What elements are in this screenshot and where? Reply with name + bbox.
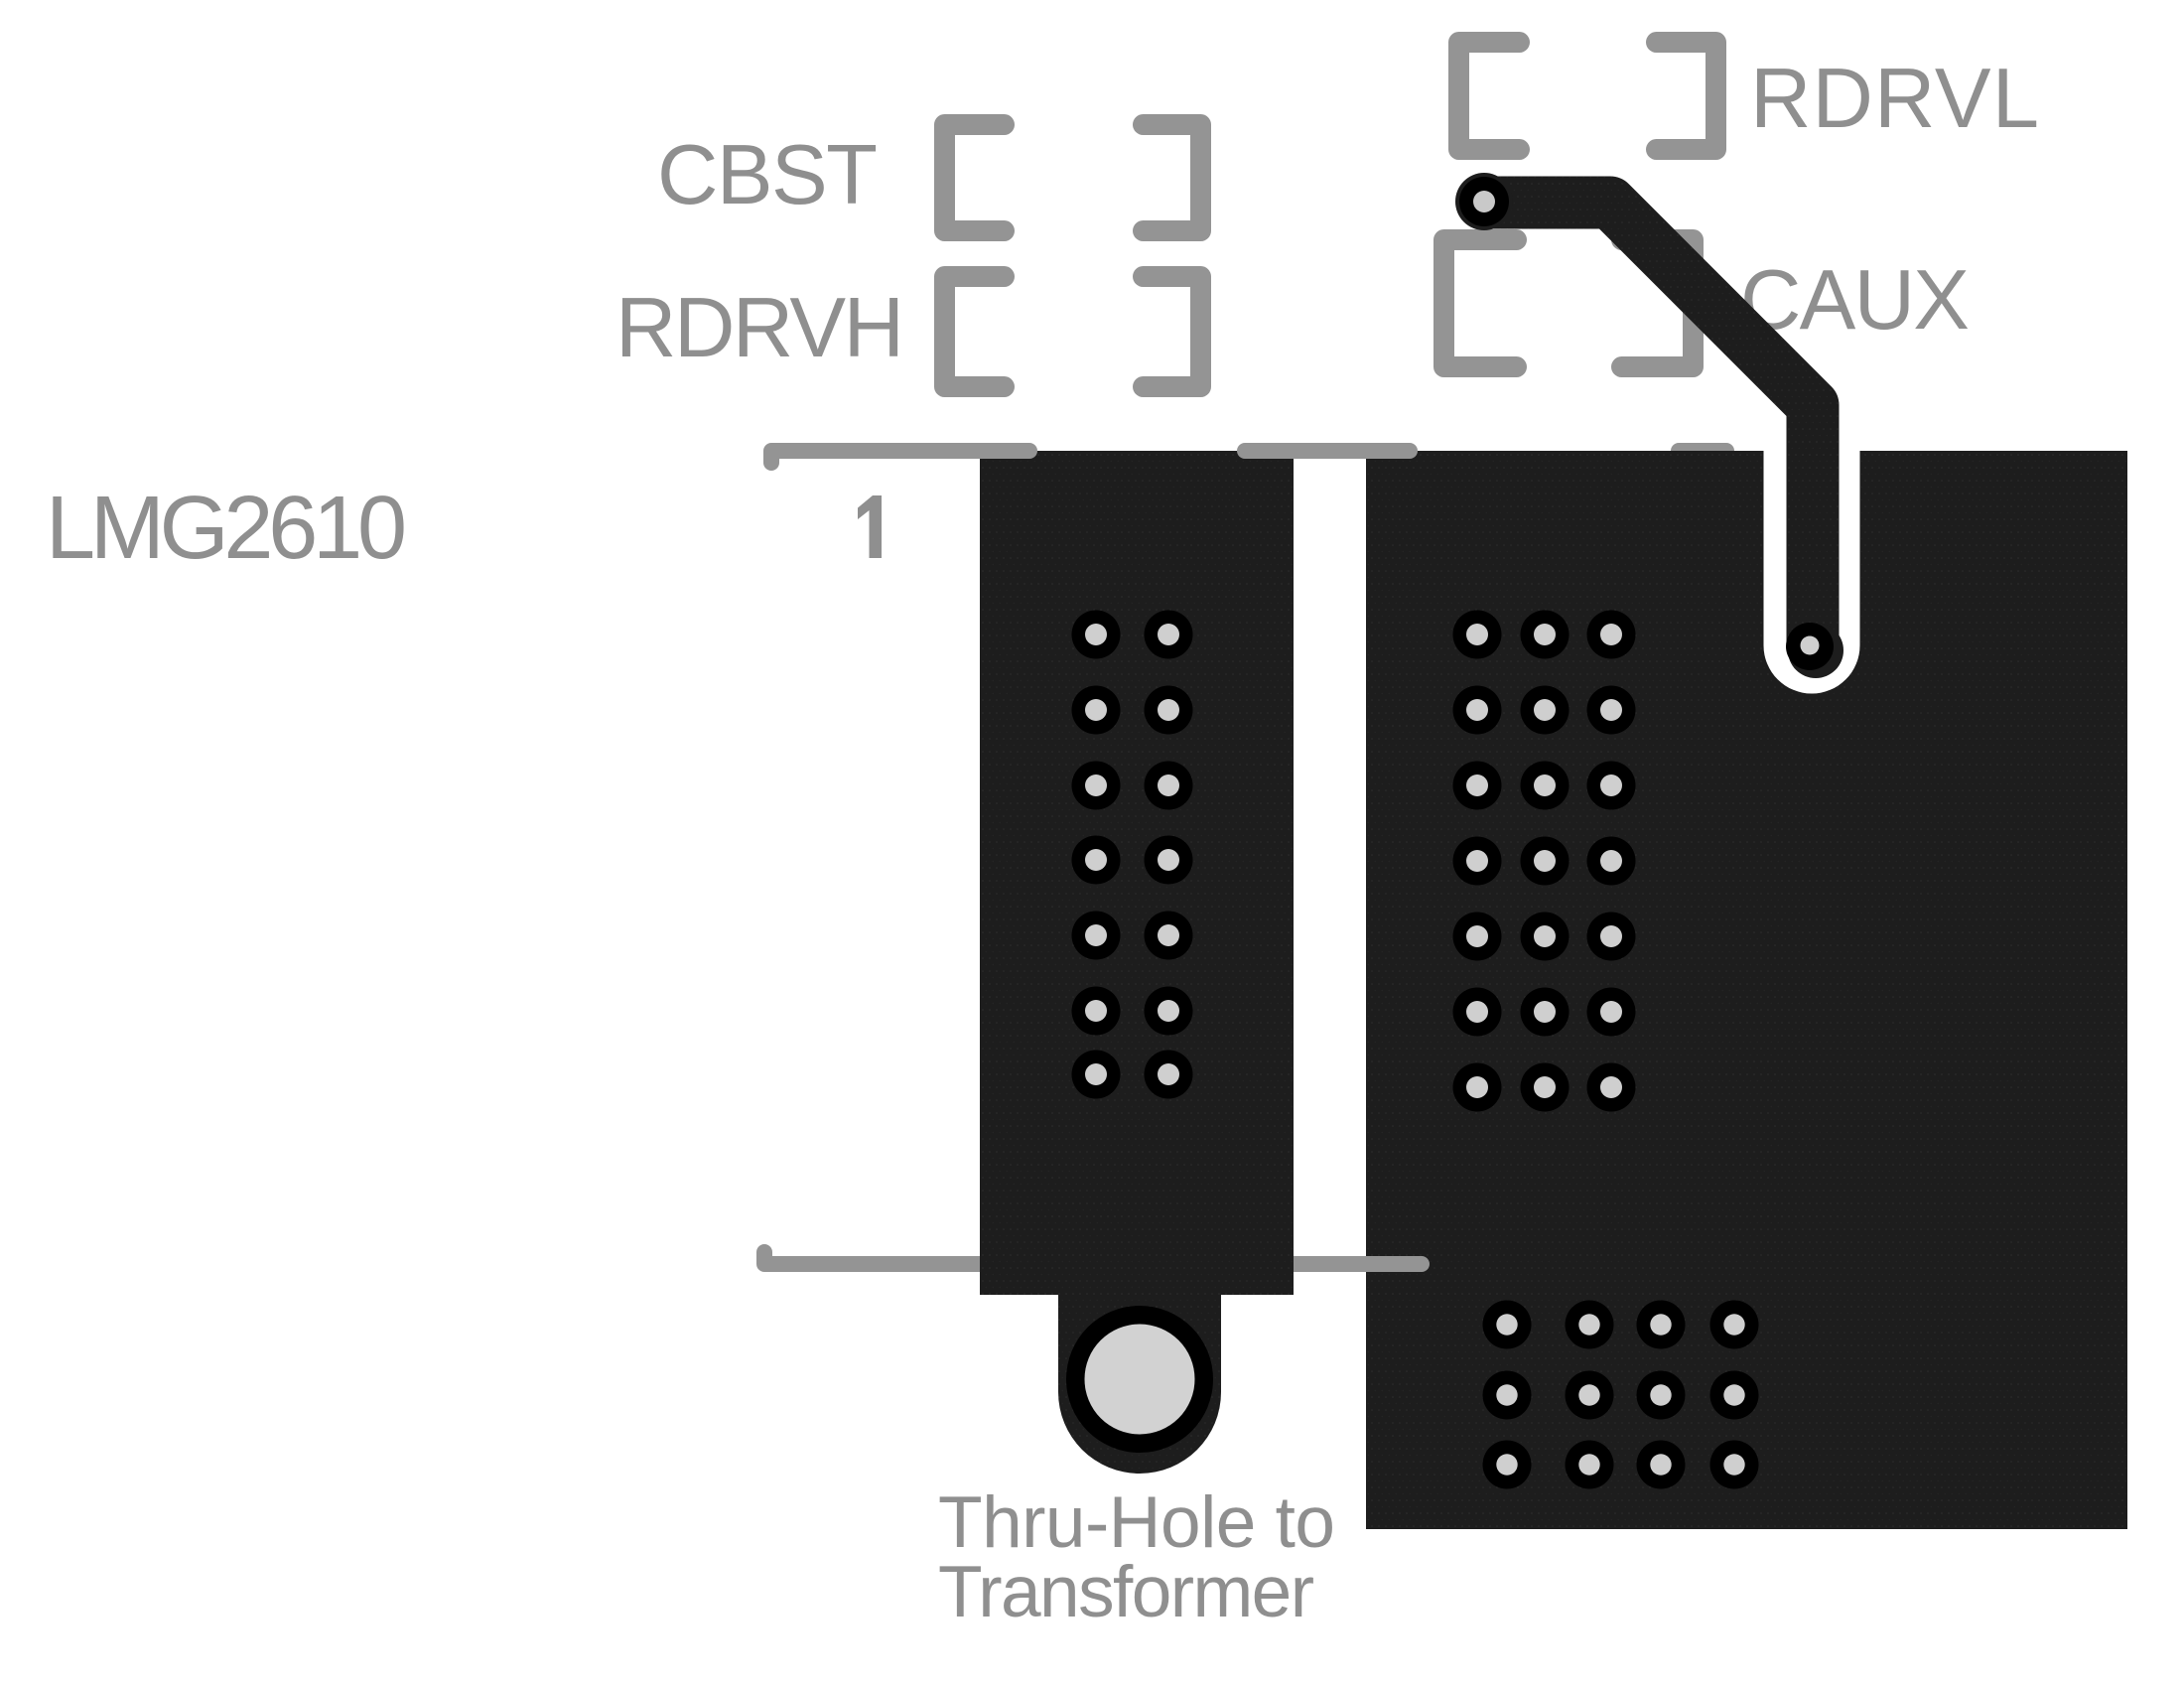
svg-text:Transformer: Transformer <box>938 1552 1314 1632</box>
svg-text:RDRVH: RDRVH <box>615 281 904 375</box>
svg-text:CBST: CBST <box>657 128 878 222</box>
svg-text:Thru-Hole to: Thru-Hole to <box>938 1482 1335 1563</box>
svg-text:RDRVL: RDRVL <box>1750 52 2039 146</box>
svg-text:LMG2610: LMG2610 <box>46 479 407 578</box>
